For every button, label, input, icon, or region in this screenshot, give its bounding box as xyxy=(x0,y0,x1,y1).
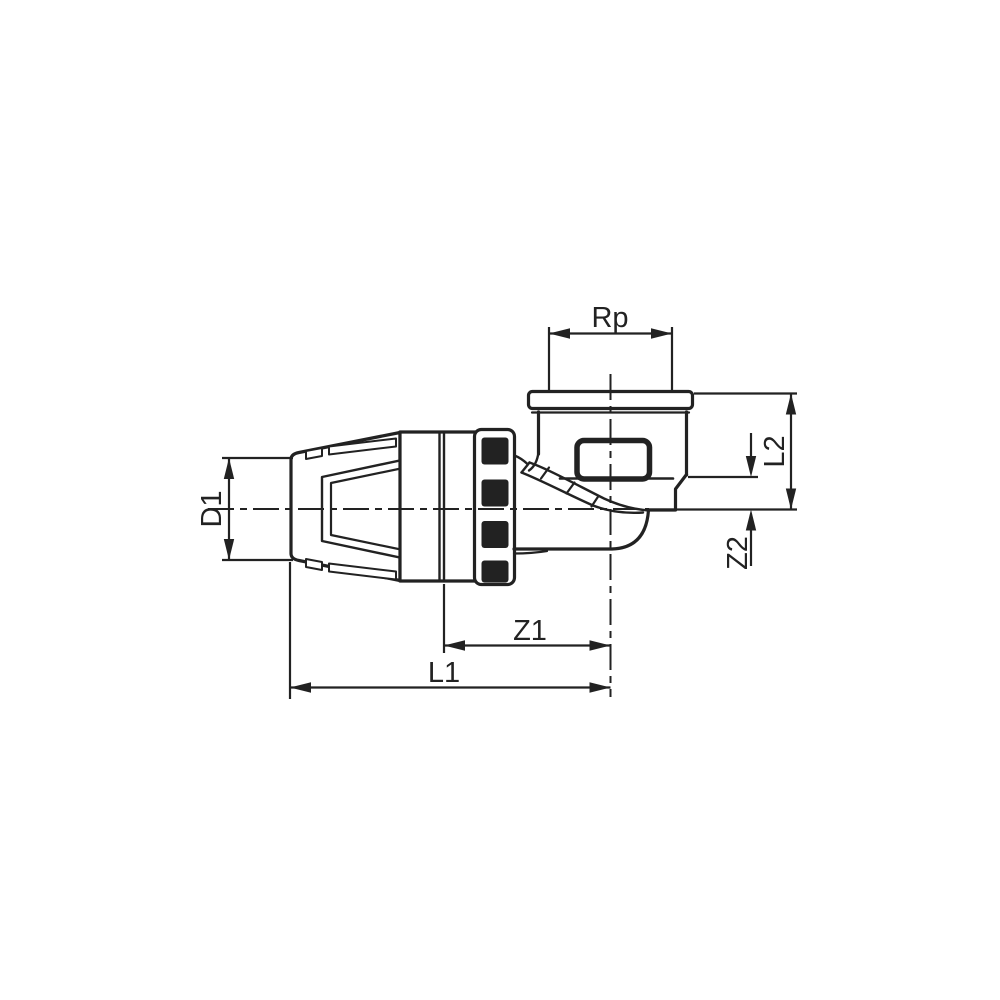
socket-boss xyxy=(577,441,650,480)
ribbed-collar xyxy=(475,430,515,585)
fitting-geometry xyxy=(291,392,693,585)
dim-label-d1: D1 xyxy=(196,490,228,527)
body-cylinder xyxy=(400,432,476,581)
elbow-body xyxy=(514,412,687,554)
technical-drawing-canvas: Rp D1 L2 Z2 Z1 L1 xyxy=(0,0,1000,1000)
drawing-page: Rp D1 L2 Z2 Z1 L1 xyxy=(0,0,1000,1000)
dim-label-l1: L1 xyxy=(428,657,460,689)
dim-label-rp: Rp xyxy=(591,302,628,334)
dim-label-z2: Z2 xyxy=(722,536,754,570)
dim-label-l2: L2 xyxy=(759,435,791,467)
dim-label-z1: Z1 xyxy=(513,615,547,647)
